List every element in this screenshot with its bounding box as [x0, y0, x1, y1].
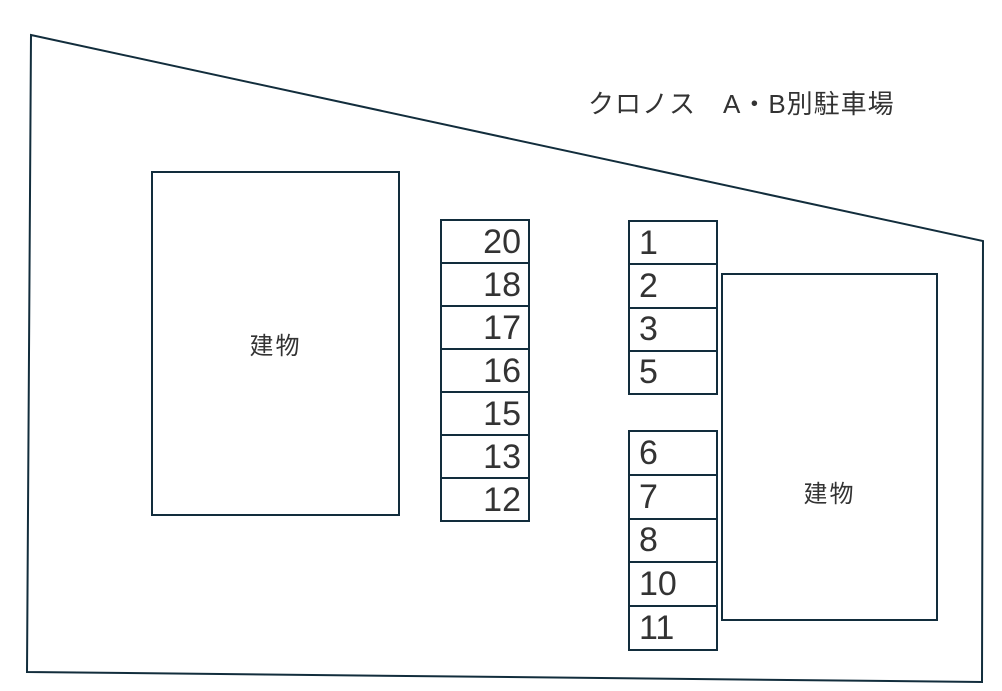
building-right: 建物	[721, 273, 938, 621]
stall-10: 10	[630, 561, 716, 605]
stall-column-middle: 20 18 17 16 15 13 12	[440, 219, 530, 522]
stall-5: 5	[630, 350, 716, 393]
stall-6: 6	[630, 432, 716, 474]
stall-column-right-upper: 1 2 3 5	[628, 220, 718, 395]
building-right-label: 建物	[804, 474, 856, 509]
stall-17: 17	[442, 305, 528, 348]
stall-18: 18	[442, 262, 528, 305]
map-title: クロノス A・B別駐車場	[588, 84, 895, 121]
stall-8: 8	[630, 518, 716, 562]
stall-15: 15	[442, 391, 528, 434]
stall-3: 3	[630, 307, 716, 350]
stall-1: 1	[630, 222, 716, 263]
stall-7: 7	[630, 474, 716, 518]
building-left: 建物	[151, 171, 400, 516]
stall-20: 20	[442, 221, 528, 262]
parking-map: クロノス A・B別駐車場 建物 建物 20 18 17 16 15 13 12 …	[0, 0, 1002, 691]
stall-16: 16	[442, 348, 528, 391]
stall-column-right-lower: 6 7 8 10 11	[628, 430, 718, 651]
building-left-label: 建物	[250, 326, 302, 361]
stall-12: 12	[442, 477, 528, 520]
stall-11: 11	[630, 605, 716, 649]
stall-13: 13	[442, 434, 528, 477]
stall-2: 2	[630, 263, 716, 306]
